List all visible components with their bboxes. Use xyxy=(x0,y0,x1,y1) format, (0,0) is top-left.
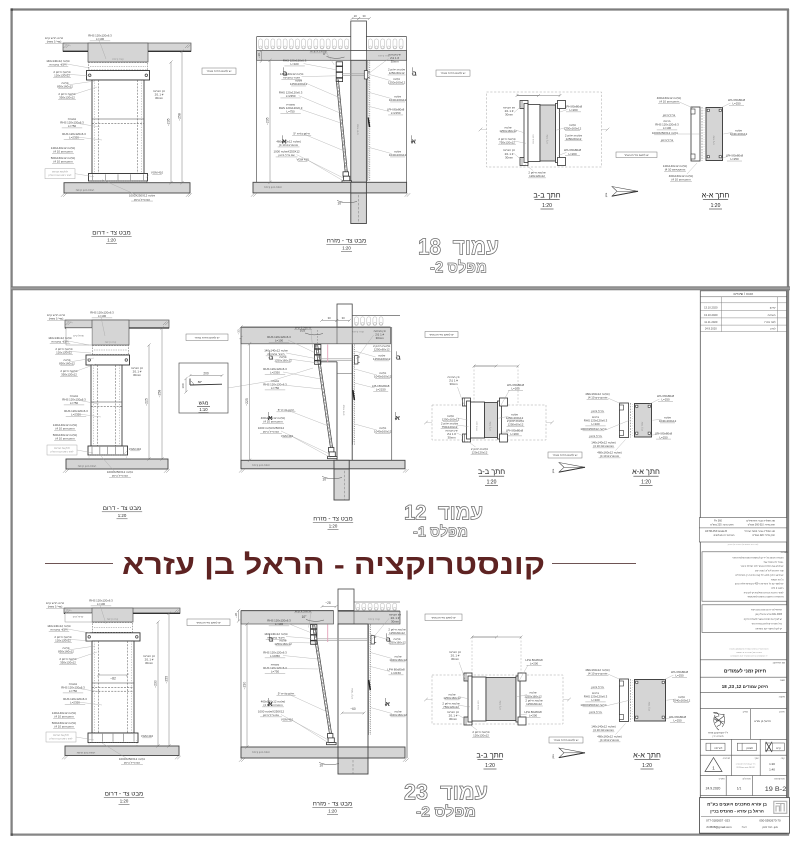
svg-text:L=200: L=200 xyxy=(510,432,519,436)
svg-text:L=2150: L=2150 xyxy=(391,111,401,115)
svg-text:1:20: 1:20 xyxy=(342,246,351,251)
svg-text:100: 100 xyxy=(181,383,185,388)
svg-text:לפני מכרז: לפני מכרז xyxy=(764,320,776,324)
svg-text:רצפת בטון קיימת: רצפת בטון קיימת xyxy=(252,751,271,754)
svg-text:L=750: L=750 xyxy=(287,110,296,114)
svg-text:עם גריל ביטון: עם גריל ביטון xyxy=(124,761,140,765)
svg-text:1040x160x12: 1040x160x12 xyxy=(389,658,407,662)
svg-text:לאחר ביצוע העברת העליון: לאחר ביצוע העברת העליון xyxy=(49,174,72,177)
svg-text:להלן את הברגים: להלן את הברגים xyxy=(54,447,71,450)
svg-text:חתך א-א: חתך א-א xyxy=(632,467,660,476)
svg-text:30mm: 30mm xyxy=(133,373,142,377)
svg-text:1040x160x12: 1040x160x12 xyxy=(659,419,677,423)
svg-text:הראל בן עזרא - מהנדס בניין: הראל בן עזרא - מהנדס בניין xyxy=(710,809,764,814)
svg-text::תאריך: :תאריך xyxy=(718,779,725,781)
svg-text:13.10.2020: 13.10.2020 xyxy=(704,313,718,317)
svg-text:(4 ברגים 10mm: (4 ברגים 10mm xyxy=(600,454,620,458)
svg-text:עמוד קיים: עמוד קיים xyxy=(499,700,502,710)
svg-text:מהנדס בניין: מהנדס בניין xyxy=(713,736,724,738)
svg-text:~82: ~82 xyxy=(110,677,116,681)
svg-text:350x120x12: 350x120x12 xyxy=(60,661,76,665)
svg-text::הערות: :הערות xyxy=(780,551,788,554)
svg-text:23 עמוד: 23 עמוד xyxy=(404,780,488,805)
svg-text:פרופיל 1 קיים: פרופיל 1 קיים xyxy=(295,326,312,330)
svg-text:24.9.2020: 24.9.2020 xyxy=(705,327,717,331)
svg-text:תכנות אחריו בהליכה שמירת ולהשת: תכנות אחריו בהליכה שמירת ולהשתמש בתבנת xyxy=(729,648,769,651)
svg-text:חיזוק בזוית 5°: חיזוק בזוית 5° xyxy=(278,692,295,696)
svg-text:1:20: 1:20 xyxy=(120,799,129,804)
svg-text:11.11.2020: 11.11.2020 xyxy=(704,320,718,324)
svg-text:1:20: 1:20 xyxy=(328,809,337,814)
svg-text:להלן את הברגים: להלן את הברגים xyxy=(52,171,69,174)
svg-text::מס' שרטוט: :מס' שרטוט xyxy=(774,779,785,781)
svg-text:~235: ~235 xyxy=(266,117,270,125)
svg-text:(4 ברגים 10mm: (4 ברגים 10mm xyxy=(263,703,283,707)
svg-text:הברגים יהיו מגולוונים: הברגים יהיו מגולוונים xyxy=(714,534,735,537)
svg-text:18 עמוד: 18 עמוד xyxy=(418,234,499,260)
svg-text:רצפת בטון קיימת: רצפת בטון קיימת xyxy=(78,465,97,468)
svg-text:RHS 120: RHS 120 xyxy=(533,134,535,144)
svg-text:1000X250X12 פלטה: 1000X250X12 פלטה xyxy=(580,427,606,431)
svg-text:(4 ברגים 10mm: (4 ברגים 10mm xyxy=(53,150,73,154)
svg-text:בריל ביטון: בריל ביטון xyxy=(589,434,601,438)
svg-text:(פר' 1 מפה): (פר' 1 מפה) xyxy=(49,317,64,321)
svg-text:ה"ג או העמוד: ה"ג או העמוד xyxy=(771,579,784,581)
svg-text:יש לתאם מידות באתר: יש לתאם מידות באתר xyxy=(624,153,649,157)
svg-text:חיזוק זמני לעמודים: חיזוק זמני לעמודים xyxy=(724,668,767,675)
svg-text:L=2150: L=2150 xyxy=(391,671,401,675)
svg-text:(4 שטיפס 10mm: (4 שטיפס 10mm xyxy=(593,728,614,732)
svg-text:קורה קיימת: קורה קיימת xyxy=(112,58,124,61)
svg-text:עמוד קיים: עמוד קיים xyxy=(351,688,354,699)
svg-text::מיקום: :מיקום xyxy=(779,696,786,699)
svg-text:1000X250X12 פלטה: 1000X250X12 פלטה xyxy=(580,703,606,707)
svg-text:הכנה / שינויים: הכנה / שינויים xyxy=(734,292,754,296)
svg-text:~255: ~255 xyxy=(165,676,169,684)
svg-text:העבודה תבוצע על ידי קבלן מסגרו: העבודה תבוצע על ידי קבלן מסגרות שבטכנולו… xyxy=(732,557,784,560)
svg-text:30mm: 30mm xyxy=(376,336,385,340)
svg-text:24.9.2020: 24.9.2020 xyxy=(706,786,721,790)
svg-text:L=2350: L=2350 xyxy=(69,136,79,140)
svg-text:מבט צד - דרום: מבט צד - דרום xyxy=(103,505,142,512)
svg-text:1:20: 1:20 xyxy=(485,763,495,769)
svg-text::קנה: :קנה xyxy=(780,757,785,760)
svg-text:רצפת בטון קיימת: רצפת בטון קיימת xyxy=(264,186,283,189)
svg-text:צפון: צפון xyxy=(605,192,608,197)
svg-text:rb4508@gmail.com: rb4508@gmail.com xyxy=(706,825,732,829)
svg-text:צפון: צפון xyxy=(552,754,555,759)
svg-text:350x120x12: 350x120x12 xyxy=(59,96,75,100)
svg-text:ד"ר אברהם בן עזרא: ד"ר אברהם בן עזרא xyxy=(708,731,728,734)
svg-text:מבט צד - דרום: מבט צד - דרום xyxy=(105,791,144,798)
svg-text:~28: ~28 xyxy=(325,601,331,605)
svg-text:יש לבצע ריתוך מלא בכל קצה החיב: יש לבצע ריתוך מלא בכל קצה החיבור בין הפר… xyxy=(735,574,783,577)
svg-text:וצבע עם עליון גוון RAL 9005: וצבע עם עליון גוון RAL 9005 xyxy=(755,613,782,616)
svg-text:יש לתאם מידות באתר: יש לתאם מידות באתר xyxy=(207,69,232,73)
svg-text:30mm: 30mm xyxy=(391,620,400,624)
svg-text:1040x160x12: 1040x160x12 xyxy=(389,153,407,157)
svg-text:יש לתאם מידות באתר: יש לתאם מידות באתר xyxy=(196,620,221,624)
svg-text:1:20: 1:20 xyxy=(642,763,652,769)
svg-text:1:20: 1:20 xyxy=(329,524,338,529)
svg-text:1:20: 1:20 xyxy=(118,513,127,518)
svg-text:1:10: 1:10 xyxy=(199,407,208,412)
svg-text:מען. כמר פינק: מען. כמר פינק xyxy=(762,826,778,829)
svg-text:בריל ביטון: בריל ביטון xyxy=(663,113,675,117)
svg-text:L=200: L=200 xyxy=(529,714,538,718)
svg-text:בתנאי 4 מ"מ: בתנאי 4 מ"מ xyxy=(771,588,784,590)
svg-text:L=250: L=250 xyxy=(661,398,670,402)
svg-text:850x160x12: 850x160x12 xyxy=(58,650,74,654)
svg-text:1040x160x12: 1040x160x12 xyxy=(389,713,407,717)
svg-text:עמוד קיים: עמוד קיים xyxy=(357,123,360,134)
svg-text:1250x60x12: 1250x60x12 xyxy=(389,631,405,635)
svg-text:חיזוק עמודים 12, 23, 18: חיזוק עמודים 12, 23, 18 xyxy=(722,684,768,689)
svg-text:~30: ~30 xyxy=(257,53,261,58)
svg-text:L=100: L=100 xyxy=(275,339,284,343)
svg-text:הראל בן עזרא: הראל בן עזרא xyxy=(754,719,771,723)
svg-text:1:40: 1:40 xyxy=(769,768,775,772)
svg-text:VGM 410: VGM 410 xyxy=(151,171,164,175)
svg-text:לעיון: לעיון xyxy=(770,327,776,331)
svg-text:VGM 410: VGM 410 xyxy=(296,158,309,162)
svg-text:~225: ~225 xyxy=(245,398,249,406)
svg-text:עמוד קיים: עמוד קיים xyxy=(489,421,492,431)
svg-text:L=2150: L=2150 xyxy=(376,388,386,392)
svg-text:120x120x12: 120x120x12 xyxy=(529,174,545,178)
svg-text:(4 ברגים 10mm: (4 ברגים 10mm xyxy=(588,396,608,400)
svg-text:L=750: L=750 xyxy=(68,124,77,128)
svg-text:1:20: 1:20 xyxy=(542,203,552,209)
svg-text:30mm: 30mm xyxy=(449,382,458,386)
svg-text:רצפת בטון קיימת: רצפת בטון קיימת xyxy=(76,189,95,192)
svg-text:120x120x12: 120x120x12 xyxy=(56,351,72,355)
svg-text:L=100: L=100 xyxy=(97,602,106,606)
svg-text:1:20: 1:20 xyxy=(711,203,721,209)
svg-text:פרופיל 1 קיים: פרופיל 1 קיים xyxy=(310,49,327,53)
svg-text:עם גריל ביטון: עם גריל ביטון xyxy=(134,197,150,201)
svg-text:עמוד קיים: עמוד קיים xyxy=(546,134,549,144)
svg-text:לאחר ביצוע העברת העליון: לאחר ביצוע העברת העליון xyxy=(51,450,74,453)
svg-text:בעבירה של חברה או אי תוספה: בעבירה של חברה או אי תוספה xyxy=(736,651,762,654)
svg-text:19 B-2: 19 B-2 xyxy=(765,786,787,793)
svg-text:1250x160x12: 1250x160x12 xyxy=(373,357,391,361)
svg-text:עמוד קיים: עמוד קיים xyxy=(343,404,346,415)
svg-text:חיבור בהברגה: חיבור בהברגה xyxy=(50,628,67,632)
svg-text:~230: ~230 xyxy=(243,682,247,690)
svg-text:~230: ~230 xyxy=(154,680,158,688)
svg-text:30mm: 30mm xyxy=(145,661,154,665)
svg-text:350x120x12: 350x120x12 xyxy=(61,373,77,377)
svg-text:חתך ב-ב: חתך ב-ב xyxy=(533,191,560,200)
svg-text:-1 מפלס: -1 מפלס xyxy=(413,525,468,541)
svg-text:L=2350: L=2350 xyxy=(286,94,296,98)
svg-text:80°: 80° xyxy=(198,380,203,384)
svg-text:Fe 360: Fe 360 xyxy=(714,520,722,523)
svg-text:שנוי ריתוכים 4 מ"מ / שנוי רוחב: שנוי ריתוכים 4 מ"מ / שנוי רוחב xyxy=(755,571,784,573)
svg-text:הפרופילים יהיו צבועים בצבע יסו: הפרופילים יהיו צבועים בצבע יסוד xyxy=(751,609,783,612)
svg-text:~60: ~60 xyxy=(350,707,356,711)
svg-text:L=200: L=200 xyxy=(511,387,520,391)
svg-text:L=100: L=100 xyxy=(96,37,105,41)
svg-text:~38: ~38 xyxy=(234,613,238,618)
svg-text:בן עזרא מתכנים ויועצים בע"מ: בן עזרא מתכנים ויועצים בע"מ xyxy=(707,802,767,807)
svg-text:750x120x12: 750x120x12 xyxy=(443,705,459,709)
svg-text:חוזק מדוד: 360-510 מגפ"ס: חוזק מדוד: 360-510 מגפ"ס xyxy=(748,524,776,527)
svg-text:L=100: L=100 xyxy=(275,622,284,626)
svg-text:1250x160x12: 1250x160x12 xyxy=(388,81,406,85)
svg-text:L=2350: L=2350 xyxy=(71,413,81,417)
svg-text:L=750: L=750 xyxy=(271,386,280,390)
svg-text:ASTM A53 Grade B: ASTM A53 Grade B xyxy=(705,530,727,533)
svg-text:יש לתאם מידות באתר: יש לתאם מידות באתר xyxy=(429,333,454,337)
svg-text:יש לתאם מידות באתר: יש לתאם מידות באתר xyxy=(195,335,220,339)
svg-text:חוזק כניעה: 235 מגפ"ס: חוזק כניעה: 235 מגפ"ס xyxy=(710,524,734,527)
svg-text:(4 ברגים 10mm: (4 ברגים 10mm xyxy=(55,437,75,441)
svg-text:VGM 410: VGM 410 xyxy=(281,434,294,438)
svg-text::דואל: :דואל xyxy=(741,826,747,829)
svg-text:30mm: 30mm xyxy=(391,60,400,64)
svg-text:850x160x12: 850x160x12 xyxy=(59,362,75,366)
svg-text:(4 ברגים 10mm: (4 ברגים 10mm xyxy=(54,725,74,729)
svg-text:יד והמסמכים ביניהם ולהגדיר אות: יד והמסמכים ביניהם ולהגדיר אות המוסמכים xyxy=(731,655,768,658)
svg-text:VGM 410: VGM 410 xyxy=(141,734,154,738)
svg-text:יש לתאם מידות באתר: יש לתאם מידות באתר xyxy=(431,615,456,619)
svg-text:עדכון: עדכון xyxy=(770,307,776,310)
svg-text:חיזוק בזוית 5°: חיזוק בזוית 5° xyxy=(278,408,295,412)
svg-text:L=250: L=250 xyxy=(673,719,682,723)
svg-text:יש לאשר עם כל הינחיות ה-409 בע: יש לאשר עם כל הינחיות ה-409 בעבודות פלדה… xyxy=(735,583,784,586)
svg-text:20: 20 xyxy=(354,14,358,18)
svg-text:1250x60x12: 1250x60x12 xyxy=(508,423,524,427)
svg-text:מגש: מגש xyxy=(199,401,209,407)
svg-text:L=2350: L=2350 xyxy=(270,654,280,658)
svg-text:12 עמוד: 12 עמוד xyxy=(404,501,483,525)
svg-text:13.10.2020: 13.10.2020 xyxy=(704,306,718,310)
svg-text:מבט צד - מזרח: מבט צד - מזרח xyxy=(313,801,352,808)
svg-text:(4 ברגים 10mm: (4 ברגים 10mm xyxy=(54,715,74,719)
svg-text:L=750: L=750 xyxy=(70,401,79,405)
svg-text:~33: ~33 xyxy=(237,329,241,334)
svg-text::מהדורה: :מהדורה xyxy=(722,758,730,760)
svg-text:1250x60x12: 1250x60x12 xyxy=(526,702,542,706)
svg-text:(4 שטיפס 10mm: (4 שטיפס 10mm xyxy=(665,168,686,172)
svg-text:(4 ברגים 10mm: (4 ברגים 10mm xyxy=(263,420,283,424)
svg-text:1040x160x12: 1040x160x12 xyxy=(389,98,407,102)
svg-text:-2 מפלס: -2 מפלס xyxy=(430,259,487,277)
svg-text:1250x60x12: 1250x60x12 xyxy=(389,71,405,75)
svg-text:1:20: 1:20 xyxy=(487,480,497,486)
svg-text:קורה קיימת: קורה קיימת xyxy=(107,618,119,621)
svg-text:1040x160x12: 1040x160x12 xyxy=(673,699,691,703)
svg-text:עובוד יודע חומר עותי.: עובוד יודע חומר עותי. xyxy=(763,562,784,564)
svg-text:בריל ביטון: בריל ביטון xyxy=(589,710,601,714)
svg-text:עם גריל ביטון: עם גריל ביטון xyxy=(263,430,279,434)
svg-text:(4 ברגים 10mm: (4 ברגים 10mm xyxy=(671,178,691,182)
svg-text:30: 30 xyxy=(362,14,366,18)
svg-text:120x120x12: 120x120x12 xyxy=(473,734,489,738)
svg-text:עם גריל ביטון: עם גריל ביטון xyxy=(112,474,128,478)
svg-text:30: 30 xyxy=(328,316,332,320)
svg-text:L=2350: L=2350 xyxy=(270,371,280,375)
svg-text:חיבור בהברגה: חיבור בהברגה xyxy=(51,340,68,344)
svg-text:L=250: L=250 xyxy=(730,157,739,161)
svg-text:30mm: 30mm xyxy=(447,436,456,440)
svg-text:L=200: L=200 xyxy=(530,662,539,666)
svg-text:30mm: 30mm xyxy=(505,113,514,117)
svg-text:הגבהה: הגבהה xyxy=(768,314,776,317)
svg-text:850x160x12: 850x160x12 xyxy=(57,85,73,89)
svg-text:1040x160x12: 1040x160x12 xyxy=(374,375,392,379)
svg-text:סוג הפלדה עבור פסות הברזל: סוג הפלדה עבור פסות הברזל xyxy=(744,529,775,533)
svg-text:קונסטרוקציה - הראל בן עזרא: קונסטרוקציה - הראל בן עזרא xyxy=(122,549,545,580)
svg-text:1250x160x12: 1250x160x12 xyxy=(388,641,406,645)
svg-text:(4 ברגים 10mm: (4 ברגים 10mm xyxy=(600,738,620,742)
svg-text:יש לתאם מידות באתר: יש לתאם מידות באתר xyxy=(441,71,466,75)
svg-text:שרוול קיים: שרוול קיים xyxy=(73,616,84,619)
svg-text::מס' גליון: :מס' גליון xyxy=(742,778,751,781)
svg-text:L=100: L=100 xyxy=(291,62,300,66)
svg-text:(4 שטיפס 10mm: (4 שטיפס 10mm xyxy=(593,444,614,448)
svg-text:עמוד קיים: עמוד קיים xyxy=(712,135,715,145)
svg-text:1:20: 1:20 xyxy=(769,762,775,766)
svg-text:קיים: קיים xyxy=(776,747,781,750)
svg-text::נבדק: :נבדק xyxy=(742,711,748,714)
svg-text:L=100: L=100 xyxy=(591,422,600,426)
svg-text:~258: ~258 xyxy=(178,113,182,121)
svg-text:120x120x12: 120x120x12 xyxy=(55,639,71,643)
svg-text:חוזק מדוד: 420 מגפ"ס: חוזק מדוד: 420 מגפ"ס xyxy=(753,534,776,537)
svg-text:רצפת בטון קיימת: רצפת בטון קיימת xyxy=(77,751,96,754)
svg-text:לשפוץ: לשפוץ xyxy=(746,746,753,750)
svg-text:עם גריל ביטון: עם גריל ביטון xyxy=(263,713,279,717)
svg-text:(4 ברגים 10mm: (4 ברגים 10mm xyxy=(659,100,679,104)
svg-text:לגבי היתר שימוש של החברה אל תע: לגבי היתר שימוש של החברה אל תעדכן xyxy=(728,543,759,546)
svg-text:1250x60x12: 1250x60x12 xyxy=(374,348,390,352)
svg-text:את אחיזה הרחוקה בהתאם לאופן או: את אחיזה הרחוקה בהתאם לאופן אופני xyxy=(747,596,784,599)
svg-text:30: 30 xyxy=(342,316,346,320)
svg-text:~225: ~225 xyxy=(145,398,149,406)
svg-text:פרופיל 1 קיים: פרופיל 1 קיים xyxy=(295,609,312,613)
svg-text:200: 200 xyxy=(203,371,209,375)
svg-text:קורה קיימת: קורה קיימת xyxy=(105,341,117,344)
svg-text:רצפת בטון קיימת: רצפת בטון קיימת xyxy=(252,464,271,467)
svg-text:סוג הפלדה עבור הפרופילים: סוג הפלדה עבור הפרופילים xyxy=(746,519,775,523)
svg-text:050-5592673-70: 050-5592673-70 xyxy=(759,819,781,823)
svg-text:1/1: 1/1 xyxy=(737,786,742,790)
svg-text:1000X250X12 פלטה: 1000X250X12 פלטה xyxy=(652,131,678,135)
svg-text:L=100: L=100 xyxy=(98,314,107,318)
svg-text:120x120x12: 120x120x12 xyxy=(54,74,70,78)
svg-text:L=100: L=100 xyxy=(663,126,672,130)
svg-text:120x120x12: 120x120x12 xyxy=(472,451,488,455)
svg-text:חתך א-א: חתך א-א xyxy=(633,751,661,760)
svg-text::שם הפרויקט: :שם הפרויקט xyxy=(772,661,785,664)
svg-text:להלן את הברגים: להלן את הברגים xyxy=(53,734,70,737)
svg-text:077-3182657 -023: 077-3182657 -023 xyxy=(706,819,730,823)
svg-text:להריסה: להריסה xyxy=(714,746,723,750)
svg-text:לאחר הרכבת הברגים והפלטות יש ל: לאחר הרכבת הברגים והפלטות יש להבטיח xyxy=(744,591,785,594)
svg-text:L=750: L=750 xyxy=(69,689,78,693)
svg-text::תכנון: :תכנון xyxy=(779,712,785,714)
svg-text:חיזוק בזוית 5°: חיזוק בזוית 5° xyxy=(293,132,310,136)
svg-text:עם גריל ביטון: עם גריל ביטון xyxy=(279,153,295,157)
svg-text:1:20: 1:20 xyxy=(641,480,651,486)
svg-text:עמוד קיים: עמוד קיים xyxy=(648,701,651,711)
svg-text:מבט צד - מזרח: מבט צד - מזרח xyxy=(327,238,366,245)
svg-text:VGM 410: VGM 410 xyxy=(281,718,294,722)
svg-text:L=100: L=100 xyxy=(591,698,600,702)
svg-text:בריל ביטון: בריל ביטון xyxy=(591,409,603,413)
svg-text:750x120x12: 750x120x12 xyxy=(499,140,515,144)
svg-text:חתך ב-ב: חתך ב-ב xyxy=(476,751,503,760)
svg-text:1040x160x12: 1040x160x12 xyxy=(374,430,392,434)
svg-text:1250x60x12: 1250x60x12 xyxy=(566,137,582,141)
svg-text:~235: ~235 xyxy=(167,118,171,126)
svg-text:30mm: 30mm xyxy=(155,96,164,100)
svg-text:L=250: L=250 xyxy=(659,435,668,439)
svg-text:L=200: L=200 xyxy=(569,108,578,112)
svg-text:30mm: 30mm xyxy=(505,155,514,159)
svg-text:קורה קיימת: קורה קיימת xyxy=(368,618,380,621)
svg-text:(4 ברגים 10mm: (4 ברגים 10mm xyxy=(55,427,75,431)
svg-text:30mm: 30mm xyxy=(449,717,458,721)
svg-text:חתך א-א: חתך א-א xyxy=(702,191,730,200)
svg-text::עורך: :עורך xyxy=(754,758,759,760)
svg-text:בכל תוכנית יש לתכנן במהירו אור: בכל תוכנית יש לתכנן במהירו אור xyxy=(751,623,782,626)
svg-text:(4 ברגים 10mm: (4 ברגים 10mm xyxy=(279,143,299,147)
svg-text:L=750: L=750 xyxy=(271,670,280,674)
svg-text:בריל ביטון: בריל ביטון xyxy=(591,685,603,689)
svg-text:יש לצרף את תוכנת אישור לתעודת: יש לצרף את תוכנת אישור לתעודת פריקה xyxy=(744,618,783,621)
svg-text:קורה קיימת: קורה קיימת xyxy=(352,331,364,334)
svg-text:לאחר ביצוע העברת העליון: לאחר ביצוע העברת העליון xyxy=(50,737,73,740)
svg-text:חתך ב-ב: חתך ב-ב xyxy=(478,467,505,476)
svg-text:~258: ~258 xyxy=(158,390,162,398)
svg-text:30mm: 30mm xyxy=(451,657,460,661)
svg-text:מבט צד - דרום: מבט צד - דרום xyxy=(92,230,131,237)
svg-text:(4 ברגים 10mm: (4 ברגים 10mm xyxy=(588,672,608,676)
svg-text::נושא: :נושא xyxy=(780,680,785,682)
svg-text:צפון: צפון xyxy=(552,468,555,473)
svg-text:עמוד קיים: עמוד קיים xyxy=(641,421,644,431)
svg-text:VGM 410: VGM 410 xyxy=(129,447,142,451)
svg-text:RHS 120: RHS 120 xyxy=(478,700,480,710)
svg-text:L=250: L=250 xyxy=(732,102,741,106)
svg-text:(פר' 1 מפה): (פר' 1 מפה) xyxy=(47,40,62,44)
svg-text:1:20: 1:20 xyxy=(107,238,116,243)
svg-text:יש לוודא את המידות באתר לפני ת: יש לוודא את המידות באתר לפני תחילת הייצו… xyxy=(741,565,784,568)
svg-text:חיבור בהברגה: חיבור בהברגה xyxy=(49,63,66,67)
svg-text:שרוול קיים: שרוול קיים xyxy=(73,335,84,338)
svg-text:יש לתאם מידות באתר: יש לתאם מידות באתר xyxy=(553,453,578,457)
svg-text:-2 מפלס: -2 מפלס xyxy=(416,805,476,821)
svg-text:יש לתאם מידות באתר: יש לתאם מידות באתר xyxy=(554,738,579,742)
svg-text:L=2350: L=2350 xyxy=(70,701,80,705)
svg-text:בריל ביטון: בריל ביטון xyxy=(661,138,673,142)
svg-text:(פר' 1 מפה): (פר' 1 מפה) xyxy=(48,605,63,609)
svg-text:L=200: L=200 xyxy=(568,152,577,156)
svg-text:(4 ברגים 10mm: (4 ברגים 10mm xyxy=(53,160,73,164)
svg-text:L=250: L=250 xyxy=(675,674,684,678)
svg-text:מבט צד - מזרח: מבט צד - מזרח xyxy=(313,516,352,523)
svg-text:RHS 120: RHS 120 xyxy=(477,421,479,431)
svg-text:יש לקבל אישור יועץ בחתימה: יש לקבל אישור יועץ בחתימה xyxy=(755,627,782,630)
svg-text:10°: 10° xyxy=(302,615,308,619)
svg-text:רח' בן-לברט 4 תל-אביב: רח' בן-לברט 4 תל-אביב xyxy=(736,763,756,766)
svg-text:2019-tev-aviv 26/-32: 2019-tev-aviv 26/-32 xyxy=(736,766,755,769)
